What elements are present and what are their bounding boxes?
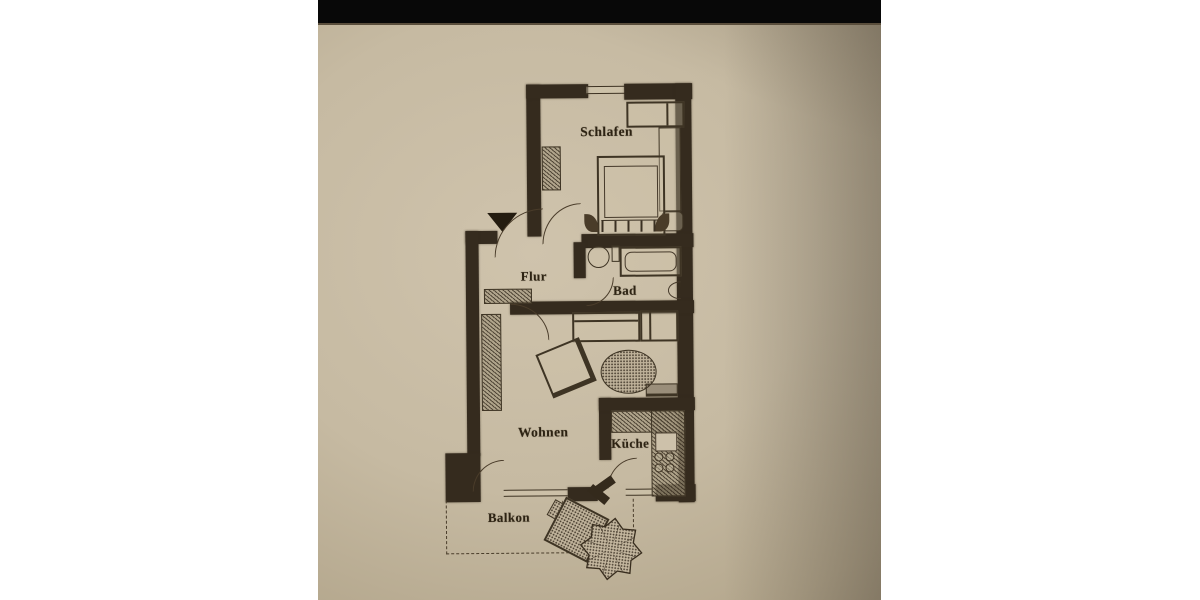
room-label-wohnen: Wohnen — [507, 424, 579, 441]
toilet — [588, 246, 610, 268]
room-label-flur: Flur — [514, 268, 554, 284]
floor-plan-photo: Schlafen Flur Bad Wohnen Küche Balkon — [318, 0, 881, 600]
toilet-cistern — [612, 246, 620, 262]
bathtub — [620, 246, 682, 277]
sofa-backrest-line — [574, 320, 638, 322]
armchair-line — [649, 313, 651, 340]
bed-footboard — [601, 219, 661, 232]
burner-icon — [654, 452, 663, 461]
wall-segment — [465, 231, 480, 456]
coffee-table — [535, 337, 596, 398]
sofa — [572, 312, 640, 343]
mattress — [604, 165, 658, 217]
room-label-schlafen: Schlafen — [570, 124, 642, 141]
armchair — [640, 310, 678, 341]
room-label-bad: Bad — [606, 283, 644, 299]
stove-burners — [653, 451, 679, 483]
burner-icon — [665, 452, 674, 461]
wall-segment — [599, 397, 695, 411]
floor-plan: Schlafen Flur Bad Wohnen Küche Balkon — [318, 0, 881, 600]
bathtub-basin — [625, 251, 677, 271]
bedroom-door-arc — [542, 203, 581, 244]
wall-segment — [526, 84, 588, 99]
room-label-balkon: Balkon — [478, 510, 540, 527]
tv-board — [646, 383, 678, 396]
shelf-unit — [481, 314, 502, 411]
hall-sideboard — [484, 289, 532, 304]
bath-sink — [668, 281, 681, 299]
wall-segment — [573, 242, 585, 278]
wardrobe — [542, 146, 561, 190]
burner-icon — [654, 463, 663, 472]
burner-icon — [665, 463, 674, 472]
window-bedroom — [586, 86, 626, 94]
window-living-south — [504, 489, 568, 497]
room-label-kueche: Küche — [601, 435, 659, 452]
dresser-divider — [667, 103, 669, 125]
